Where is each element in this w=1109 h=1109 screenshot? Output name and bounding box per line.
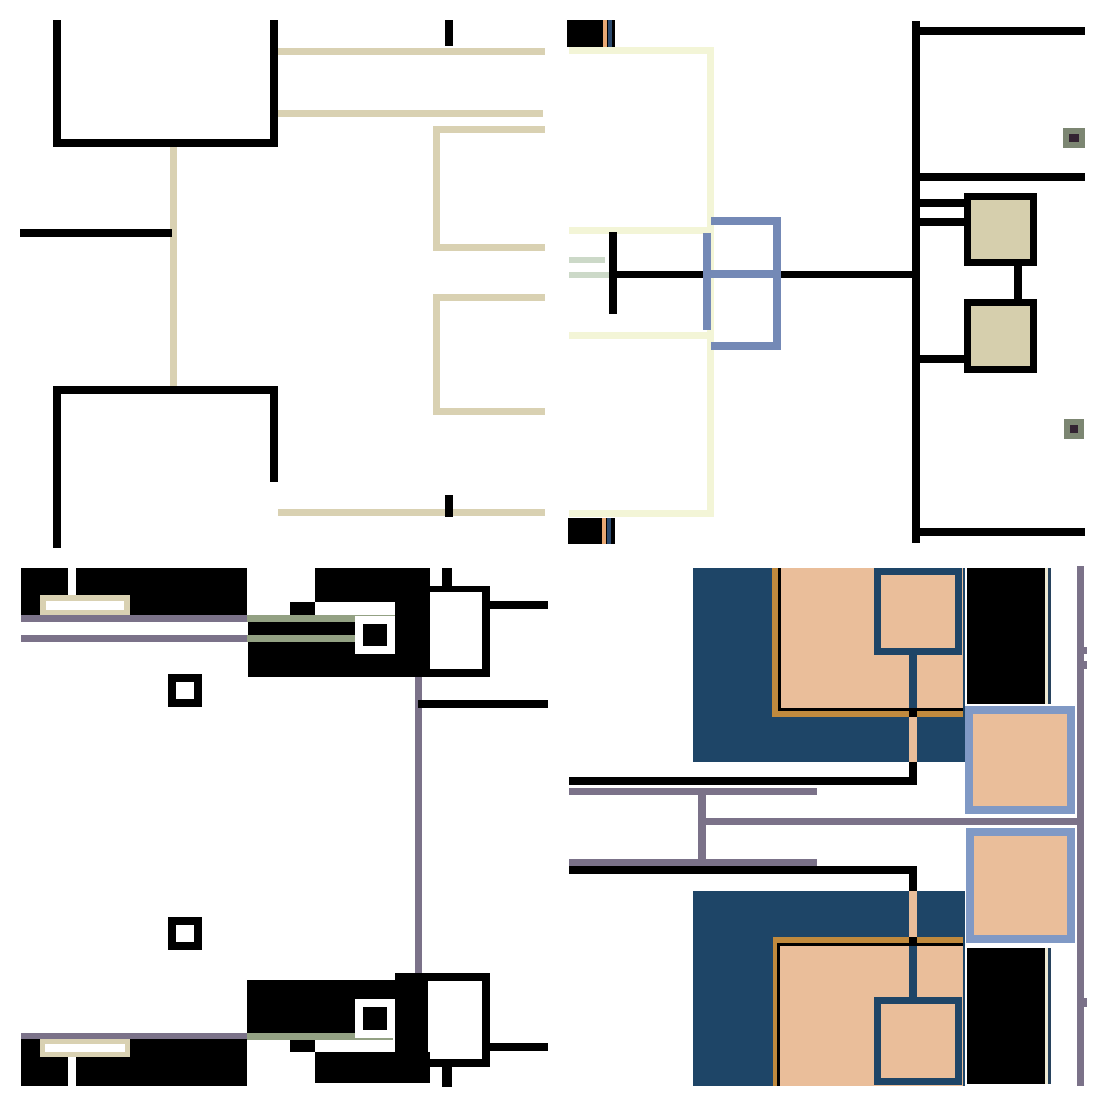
purple-rail-b <box>569 859 817 866</box>
inner-square-upper-stem <box>909 655 917 708</box>
stem-cross-dot-lower <box>909 937 917 946</box>
right-purple-vertical <box>1077 566 1084 1086</box>
stem-black-tail-lower <box>909 874 917 891</box>
black-column-upper <box>967 568 1045 704</box>
panel-bottom-right <box>0 0 1109 1109</box>
right-purple-nub-1 <box>1084 647 1087 654</box>
navy-edge-upper <box>1048 568 1051 704</box>
purple-rail-a <box>569 788 817 795</box>
purple-mid-vertical <box>698 788 706 866</box>
periwinkle-square-lower <box>966 828 1075 943</box>
right-purple-nub-2 <box>1084 661 1087 669</box>
stem-cross-dot-upper <box>909 708 917 717</box>
black-rail-lower <box>569 866 917 874</box>
black-column-lower <box>967 948 1045 1084</box>
inner-square-lower-stem <box>909 946 917 999</box>
black-rail-upper <box>569 777 917 785</box>
inner-square-upper <box>874 568 962 655</box>
navy-edge-lower <box>1048 948 1051 1084</box>
purple-rail-c <box>698 818 1084 825</box>
periwinkle-square-upper <box>965 706 1075 814</box>
stem-peach-strip-lower <box>909 891 917 937</box>
stem-peach-strip-upper <box>909 717 917 762</box>
abstract-geometric-collage <box>0 0 1109 1109</box>
right-purple-nub-3 <box>1084 998 1087 1007</box>
inner-square-lower <box>874 997 962 1085</box>
